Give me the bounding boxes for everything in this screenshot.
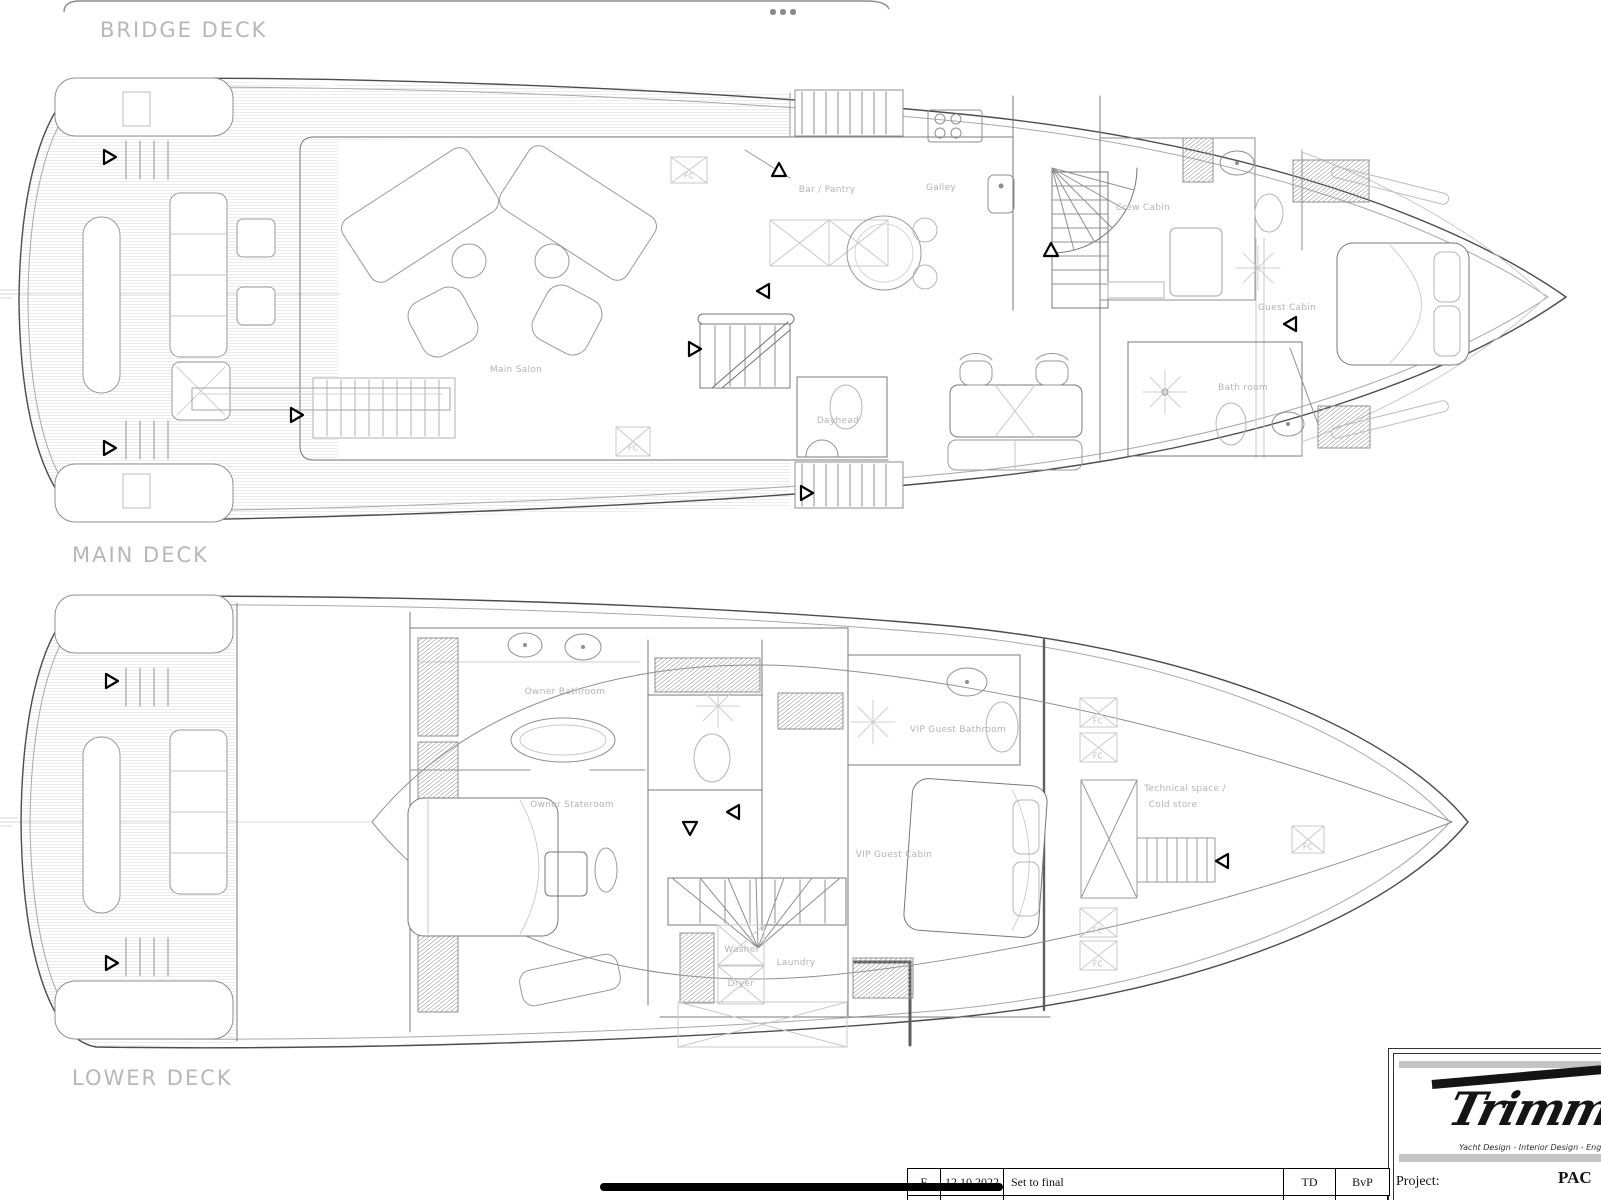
- fc-marker-label: FC: [684, 172, 694, 181]
- room-label-dayhead: Dayhead: [817, 416, 859, 426]
- lower-deck-title: LOWER DECK: [72, 1066, 233, 1090]
- revision-letter: E: [908, 1169, 941, 1195]
- room-label-cold-store: Cold store: [1149, 800, 1198, 810]
- revision-table-next-row: [907, 1196, 1388, 1200]
- deck-plan-drawing: [0, 0, 1601, 1200]
- room-label-vip-guest-cabin: VIP Guest Cabin: [856, 850, 933, 860]
- room-label-galley: Galley: [926, 183, 956, 193]
- room-label-crew-cabin: Crew Cabin: [1116, 203, 1170, 213]
- bridge-deck-edge: [64, 1, 889, 12]
- room-label-bar-pantry: Bar / Pantry: [799, 185, 856, 195]
- fc-marker-label: FC: [1093, 927, 1103, 936]
- room-label-owner-bathroom: Owner Bathroom: [525, 687, 606, 697]
- room-label-main-salon: Main Salon: [490, 365, 542, 375]
- revision-checked-by: BvP: [1336, 1169, 1389, 1195]
- room-label-owner-stateroom: Owner Stateroom: [530, 800, 614, 810]
- main-deck-title: MAIN DECK: [72, 543, 209, 567]
- room-label-dryer: Dryer: [728, 979, 755, 989]
- revision-description: Set to final: [1004, 1169, 1284, 1195]
- redaction-marker-bar: [600, 1183, 1003, 1191]
- fc-marker-label: FC: [628, 444, 638, 453]
- revision-date: 12.10.2022: [941, 1169, 1004, 1195]
- overflow-menu-icon[interactable]: [770, 9, 796, 15]
- main-deck-plan: [0, 78, 1566, 522]
- trimm-logo: Trimm: [1443, 1082, 1601, 1136]
- room-label-guest-cabin: Guest Cabin: [1258, 303, 1316, 313]
- bridge-deck-title: BRIDGE DECK: [100, 18, 267, 42]
- room-label-washer: Washer: [724, 945, 759, 955]
- revision-drawn-by: TD: [1284, 1169, 1336, 1195]
- fc-marker-label: FC: [1093, 960, 1103, 969]
- yacht-plan-sheet: BRIDGE DECK MAIN DECK LOWER DECK Bar / P…: [0, 0, 1601, 1200]
- room-label-bathroom: Bath room: [1218, 383, 1268, 393]
- fc-marker-label: FC: [1093, 717, 1103, 726]
- revision-table-row: E 12.10.2022 Set to final TD BvP: [907, 1168, 1390, 1196]
- fc-marker-label: FC: [1093, 752, 1103, 761]
- title-block-border: [1388, 1048, 1601, 1049]
- room-label-vip-guest-bathroom: VIP Guest Bathroom: [910, 725, 1006, 735]
- logo-tagline: Yacht Design - Interior Design - Enginee…: [1459, 1143, 1601, 1152]
- room-label-laundry: Laundry: [777, 958, 816, 968]
- project-name: PAC: [1558, 1168, 1592, 1188]
- room-label-technical-space: Technical space /: [1144, 784, 1226, 794]
- title-block-divider: [1399, 1154, 1601, 1162]
- fc-marker-label: FC: [1303, 843, 1313, 852]
- project-label: Project:: [1396, 1174, 1440, 1190]
